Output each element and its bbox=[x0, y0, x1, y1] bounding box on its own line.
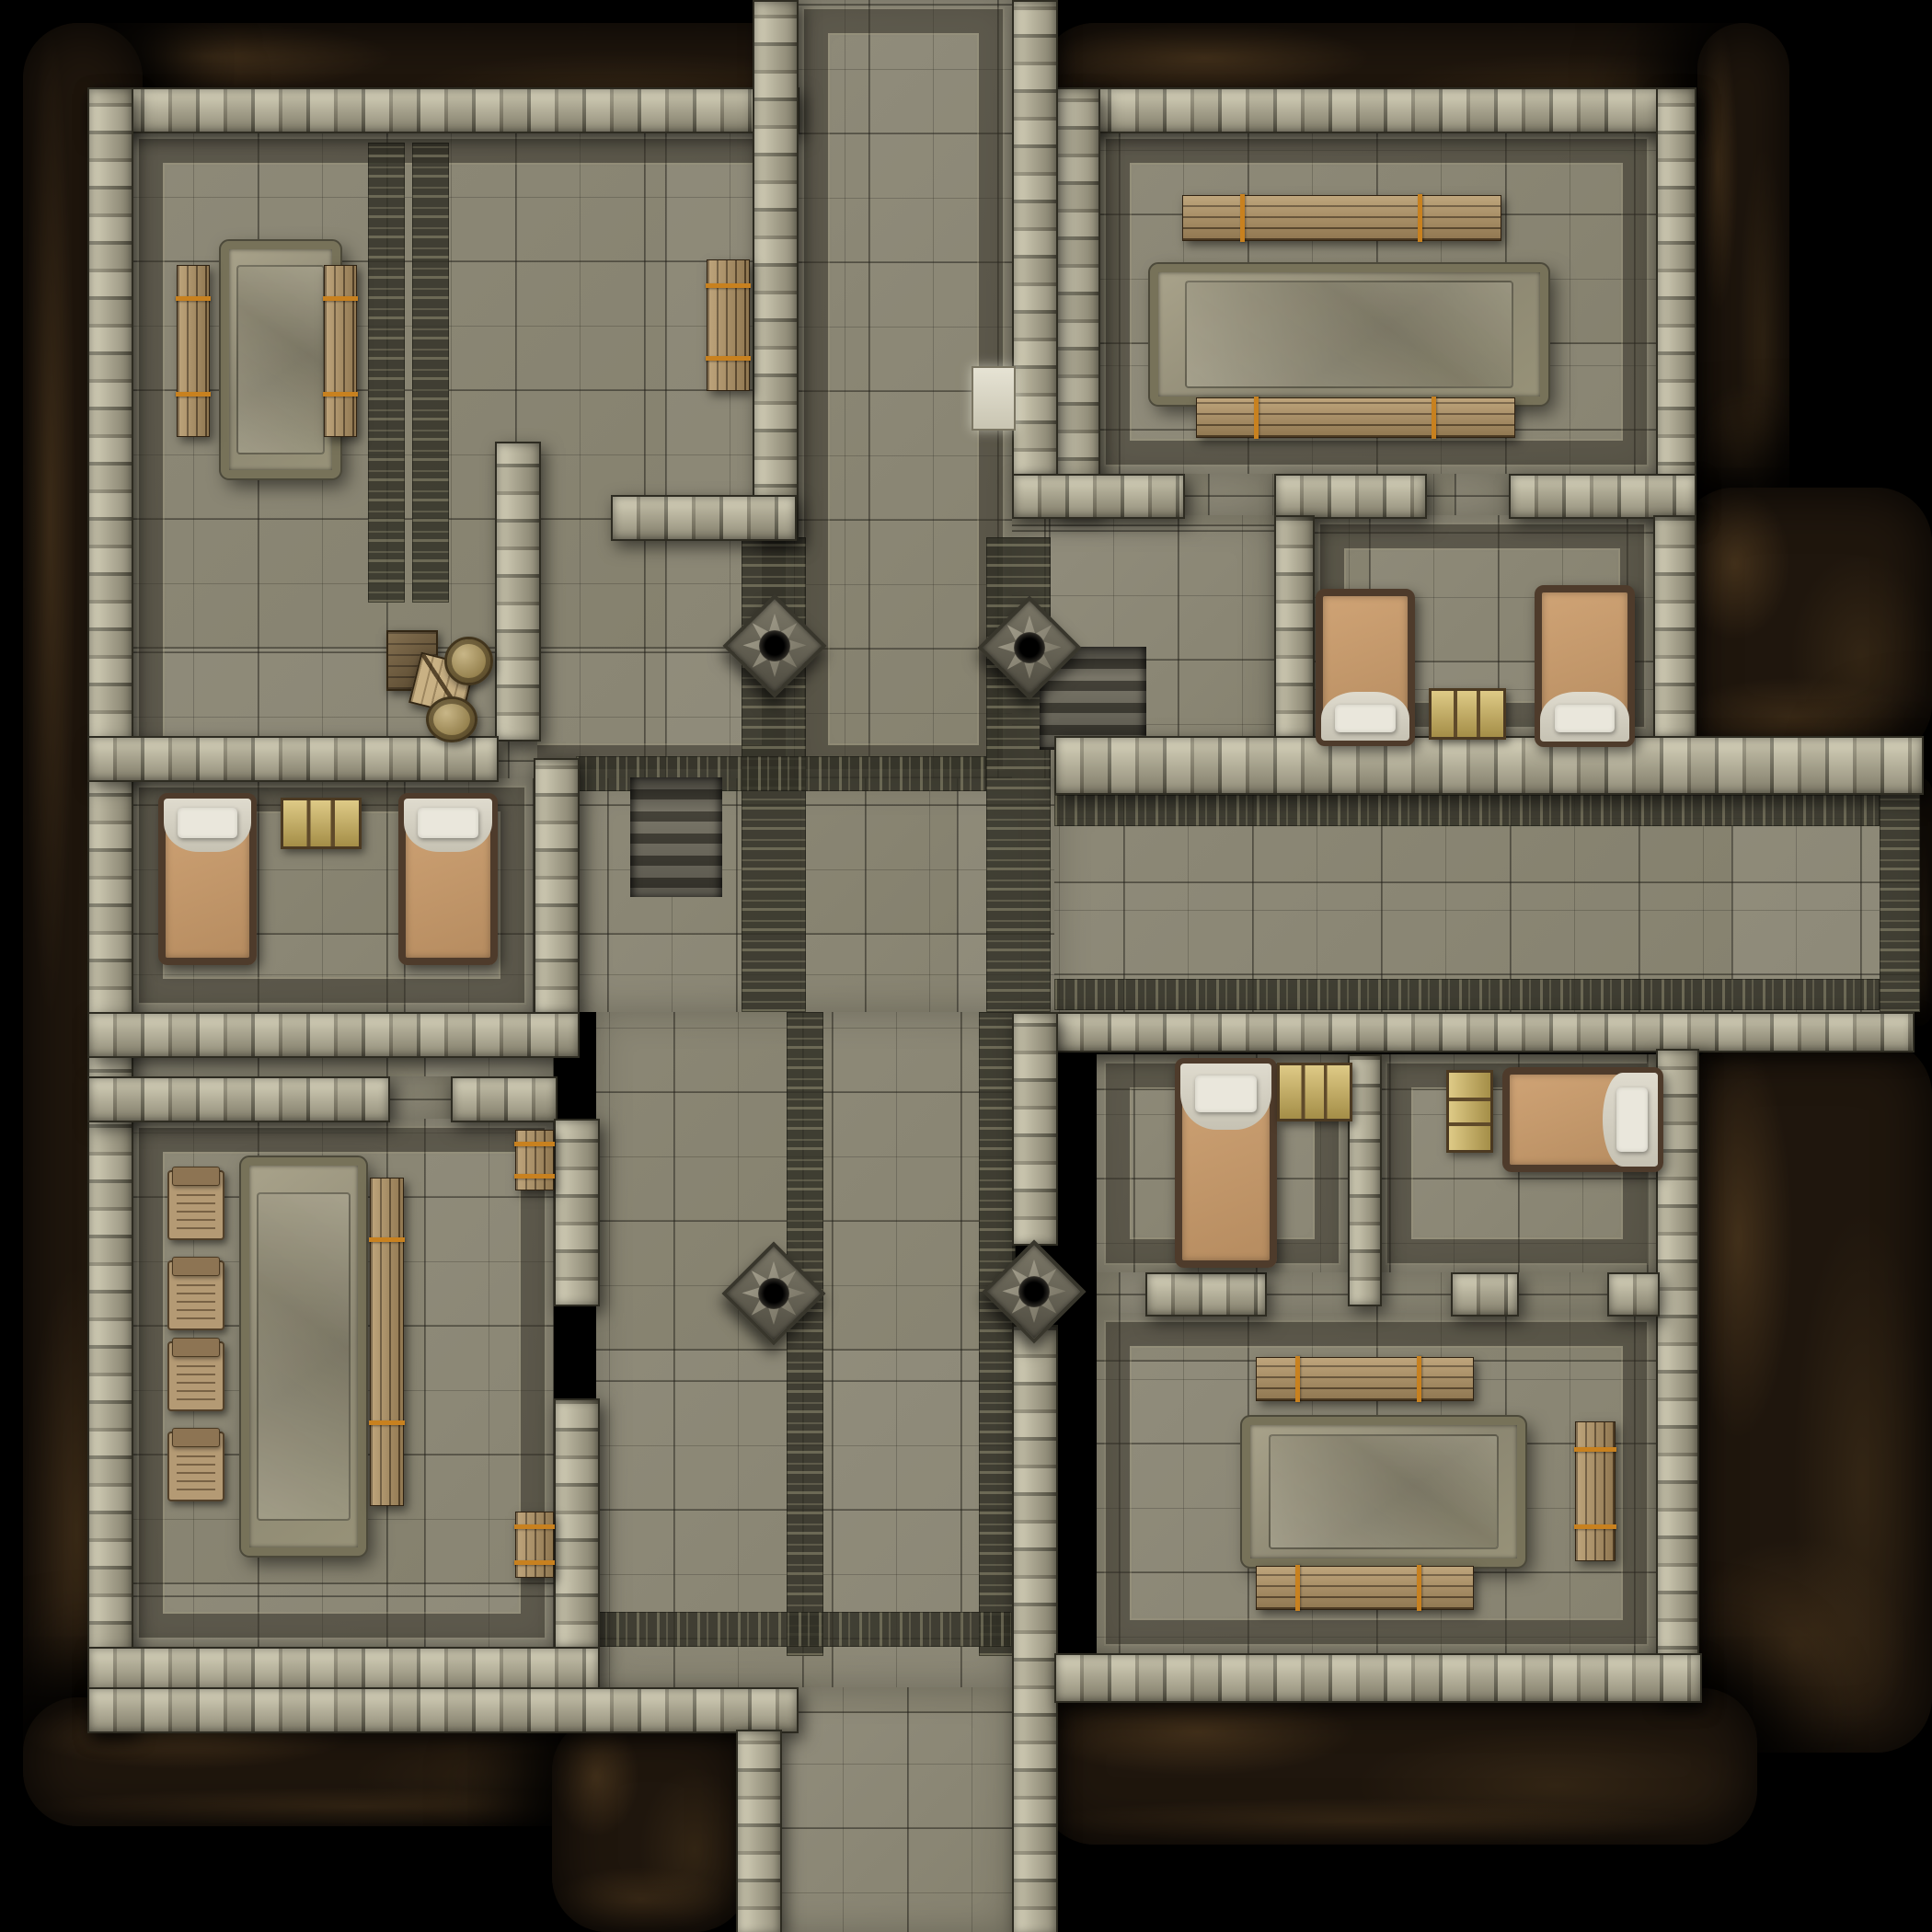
stone-table bbox=[1150, 264, 1548, 405]
stone-wall bbox=[1274, 515, 1315, 740]
stone-wall bbox=[736, 1730, 782, 1932]
meander-border bbox=[412, 143, 449, 603]
stone-wall bbox=[1054, 1012, 1915, 1052]
stone-wall bbox=[87, 87, 799, 133]
stone-wall bbox=[534, 758, 580, 1016]
stone-table bbox=[1242, 1417, 1525, 1567]
stone-wall bbox=[1653, 515, 1696, 740]
wooden-bench bbox=[177, 265, 210, 437]
wooden-bench bbox=[1256, 1566, 1474, 1610]
stone-wall bbox=[1145, 1272, 1267, 1317]
stone-wall bbox=[1012, 474, 1185, 519]
stone-wall bbox=[1012, 1325, 1058, 1932]
stone-wall bbox=[554, 1398, 600, 1650]
bed-sheet bbox=[1540, 692, 1629, 742]
meander-border bbox=[368, 143, 405, 603]
chair bbox=[167, 1341, 224, 1411]
barrel bbox=[444, 637, 493, 685]
stone-wall bbox=[554, 1119, 600, 1306]
cave-rock bbox=[1040, 1688, 1757, 1845]
stone-wall bbox=[1012, 0, 1058, 477]
wooden-bench bbox=[515, 1512, 554, 1578]
pillow bbox=[1335, 705, 1395, 732]
stone-wall bbox=[451, 1076, 558, 1122]
stone-table bbox=[221, 241, 340, 478]
stone-wall bbox=[1607, 1272, 1660, 1317]
bed bbox=[158, 793, 257, 965]
floor-door-ne-1 bbox=[1181, 474, 1274, 515]
bed-sheet bbox=[404, 799, 492, 852]
chest bbox=[1446, 1070, 1493, 1153]
dungeon-battle-map bbox=[0, 0, 1932, 1932]
meander-border bbox=[596, 1612, 1012, 1647]
stone-wall bbox=[495, 442, 541, 742]
cave-rock bbox=[552, 1716, 750, 1932]
bed bbox=[1502, 1067, 1663, 1172]
meander-border bbox=[1054, 795, 1880, 826]
bed-sheet bbox=[1603, 1073, 1658, 1167]
stone-wall bbox=[1348, 1054, 1382, 1306]
pillow bbox=[418, 808, 477, 838]
bed-sheet bbox=[164, 799, 251, 852]
pillow bbox=[1195, 1075, 1257, 1112]
barrel bbox=[426, 696, 477, 742]
chair bbox=[167, 1432, 224, 1501]
stone-wall bbox=[1274, 474, 1427, 519]
bed bbox=[398, 793, 498, 965]
door-sill bbox=[972, 366, 1016, 431]
stone-wall bbox=[611, 495, 797, 541]
wooden-bench bbox=[515, 1130, 554, 1190]
chair bbox=[167, 1170, 224, 1240]
bed bbox=[1175, 1058, 1277, 1268]
stone-wall bbox=[1509, 474, 1696, 519]
pillow bbox=[1616, 1087, 1648, 1151]
stone-wall bbox=[87, 87, 133, 1733]
floor-door-hall-sw bbox=[386, 1076, 451, 1119]
bed-sheet bbox=[1321, 692, 1409, 741]
stone-wall bbox=[87, 1076, 390, 1122]
chest bbox=[1277, 1063, 1352, 1121]
stone-wall bbox=[753, 0, 799, 541]
wooden-bench bbox=[1182, 195, 1501, 241]
meander-border bbox=[787, 1012, 823, 1656]
cave-rock bbox=[1679, 488, 1932, 759]
stone-table bbox=[241, 1157, 366, 1556]
cave-rock bbox=[1697, 23, 1789, 538]
cave-rock bbox=[1684, 1040, 1932, 1753]
stone-wall bbox=[87, 1012, 580, 1058]
stone-wall bbox=[1451, 1272, 1519, 1317]
wooden-bench bbox=[1256, 1357, 1474, 1401]
stone-wall bbox=[1054, 87, 1100, 514]
bed bbox=[1316, 589, 1415, 746]
wooden-bench bbox=[370, 1178, 404, 1506]
stone-wall bbox=[1012, 1012, 1058, 1246]
stone-wall bbox=[87, 1687, 799, 1733]
stairs-west bbox=[630, 777, 722, 897]
wooden-bench bbox=[1575, 1421, 1616, 1561]
wooden-bench bbox=[324, 265, 357, 437]
stone-wall bbox=[1656, 87, 1696, 519]
meander-border bbox=[1880, 791, 1920, 1012]
floor-door-ne-2 bbox=[1423, 474, 1509, 515]
floor-door-bedroom-west bbox=[495, 736, 537, 778]
chest bbox=[1429, 688, 1506, 740]
bed bbox=[1535, 585, 1635, 747]
stone-wall bbox=[1054, 1653, 1702, 1703]
chest bbox=[281, 798, 362, 849]
meander-border bbox=[1054, 979, 1880, 1010]
pillow bbox=[1555, 705, 1616, 732]
stone-wall bbox=[1054, 736, 1924, 795]
stone-wall bbox=[87, 736, 499, 782]
pillow bbox=[178, 808, 237, 838]
stone-wall bbox=[1054, 87, 1696, 133]
chair bbox=[167, 1260, 224, 1330]
wooden-bench bbox=[1196, 397, 1515, 438]
bed-sheet bbox=[1180, 1064, 1271, 1130]
meander-border bbox=[979, 1012, 1016, 1656]
wooden-bench bbox=[707, 259, 750, 391]
